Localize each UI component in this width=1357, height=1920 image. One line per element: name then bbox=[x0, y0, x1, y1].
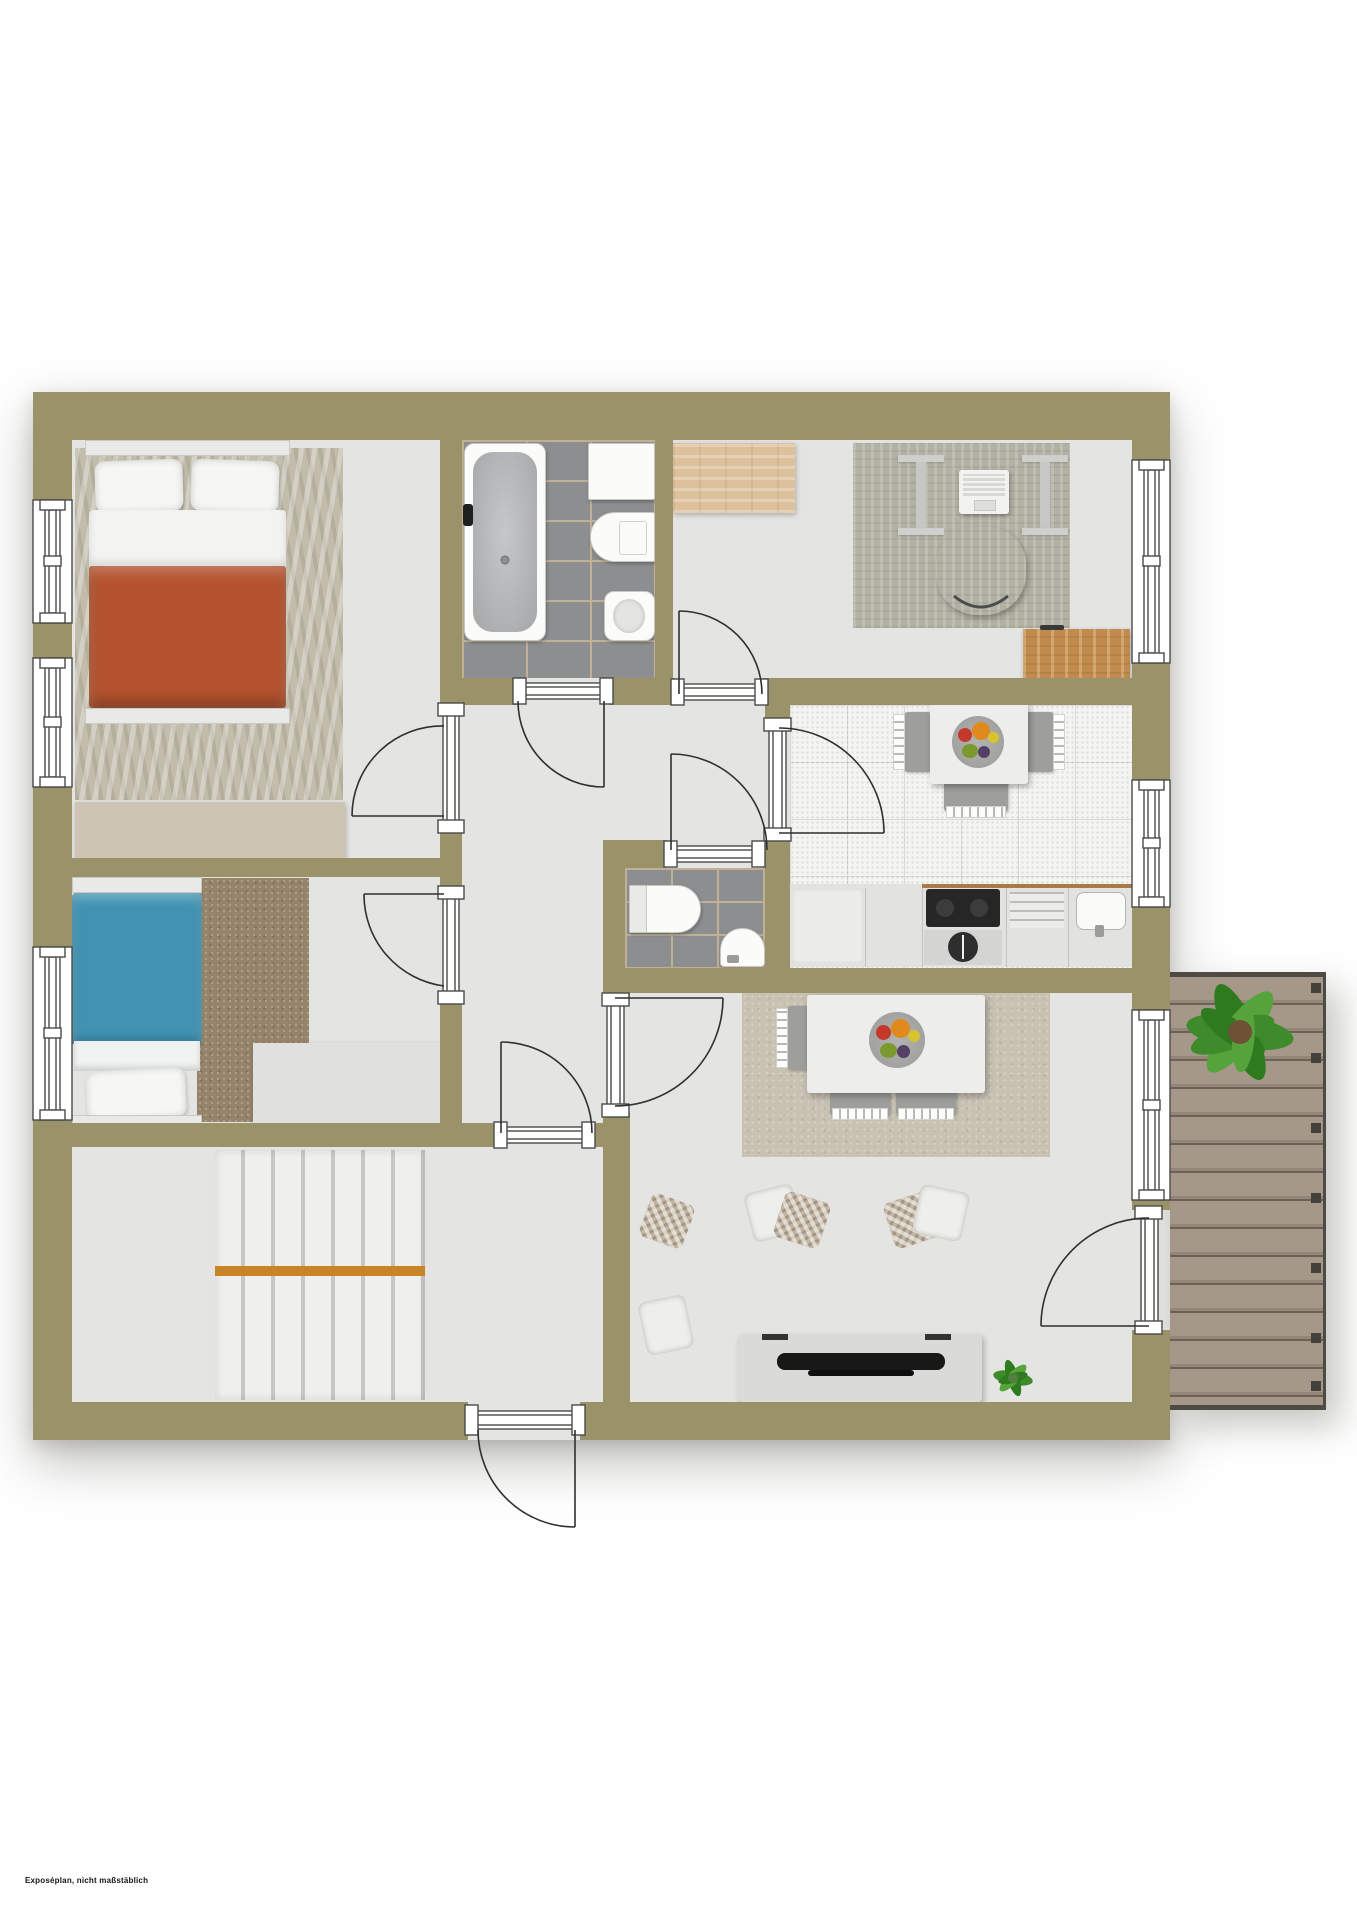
sofa-pillow bbox=[911, 1183, 970, 1242]
tv-stand bbox=[808, 1370, 914, 1376]
kitchen-counter bbox=[790, 884, 1132, 967]
wc-faucet-icon bbox=[727, 955, 739, 963]
deck-post bbox=[1311, 1381, 1321, 1391]
wall-living-west bbox=[603, 993, 630, 997]
trestle-cap bbox=[1022, 528, 1068, 535]
trestle-cap bbox=[898, 528, 944, 535]
counter-divider bbox=[922, 888, 923, 967]
wc-toilet-tank bbox=[630, 886, 647, 932]
stairs-handrail bbox=[215, 1266, 425, 1276]
wall-left bbox=[33, 623, 72, 658]
trestle-cap bbox=[1022, 455, 1068, 462]
balcony-deck bbox=[1170, 972, 1326, 1410]
office-sideboard bbox=[673, 443, 795, 513]
tv bbox=[777, 1353, 945, 1370]
kids-bed-pillow bbox=[85, 1066, 187, 1121]
kids-bed-sheet bbox=[74, 1041, 200, 1071]
fruit-grapes bbox=[897, 1045, 910, 1058]
living-chair-bottom2-back bbox=[898, 1108, 954, 1120]
kitchen-chair-bottom-back bbox=[946, 806, 1006, 818]
wall-wc-north bbox=[603, 840, 667, 868]
wall-wc-north bbox=[763, 840, 790, 868]
kitchen-chair-left-back bbox=[893, 714, 905, 770]
kitchen-chair-right-seat bbox=[1026, 712, 1054, 772]
laptop-keyboard bbox=[963, 474, 1005, 496]
living-chair-left-back bbox=[776, 1008, 788, 1068]
wall-stairs-north bbox=[593, 1123, 630, 1147]
bed-sheet bbox=[89, 510, 286, 568]
bed-pillow-left bbox=[94, 458, 184, 513]
wc-toilet bbox=[629, 885, 701, 933]
kitchen-chair-left-seat bbox=[904, 712, 932, 772]
counter-divider bbox=[865, 888, 866, 967]
wall-living-west bbox=[603, 1113, 630, 1402]
trestle-bar bbox=[916, 462, 926, 528]
counter-wood-edge bbox=[922, 884, 1132, 888]
laptop bbox=[959, 470, 1009, 514]
wall-right bbox=[1132, 1330, 1170, 1402]
fruit-yellow bbox=[988, 732, 999, 743]
kitchen-chair-right-back bbox=[1053, 714, 1065, 770]
bed-pillow-right bbox=[190, 458, 280, 513]
fruit-green bbox=[880, 1043, 897, 1058]
kids-desk bbox=[253, 1043, 441, 1123]
wall-right bbox=[1132, 1200, 1170, 1210]
counter-divider bbox=[1006, 888, 1007, 967]
fruit-grapes bbox=[978, 746, 990, 758]
wall-top bbox=[33, 392, 1170, 440]
sink-faucet-icon bbox=[1095, 925, 1104, 937]
oven-front bbox=[924, 930, 1002, 965]
bath-toilet-seat bbox=[619, 521, 647, 555]
fruit-yellow bbox=[908, 1030, 920, 1042]
wall-left bbox=[33, 440, 72, 500]
wall-kitchen-living bbox=[603, 968, 1132, 993]
tv-mount-icon bbox=[925, 1334, 951, 1340]
wall-wc-west bbox=[603, 868, 625, 968]
tv-mount-icon bbox=[762, 1334, 788, 1340]
bath-toilet bbox=[590, 512, 655, 562]
deck-post bbox=[1311, 1123, 1321, 1133]
single-bed bbox=[70, 875, 206, 1127]
bath-washbasin bbox=[588, 443, 655, 500]
dresser bbox=[75, 802, 345, 858]
burner bbox=[970, 899, 988, 917]
wall-bedrooms-divider bbox=[33, 858, 462, 877]
wall-bedroom-hall bbox=[440, 1003, 462, 1123]
trestle-cap bbox=[898, 455, 944, 462]
wall-bath-office-south bbox=[610, 678, 675, 705]
wall-left bbox=[33, 1120, 72, 1402]
bidet-bowl bbox=[613, 599, 645, 633]
fruit-red bbox=[958, 728, 972, 742]
wall-right bbox=[1132, 907, 1170, 1010]
living-chair-bottom1-back bbox=[832, 1108, 888, 1120]
wall-bath-office-south bbox=[763, 678, 1132, 705]
tv-sideboard bbox=[738, 1334, 982, 1402]
wall-bath-office-south bbox=[440, 678, 518, 705]
cooktop bbox=[926, 889, 1000, 927]
floor-plan-page: Exposéplan, nicht maßstäblich bbox=[0, 0, 1357, 1920]
knob-mark bbox=[962, 935, 964, 959]
bathtub-faucet-icon bbox=[463, 504, 473, 526]
wall-bedroom-hall bbox=[440, 440, 462, 705]
wall-bottom-left bbox=[33, 1402, 468, 1440]
plan-footnote: Exposéplan, nicht maßstäblich bbox=[25, 1876, 148, 1885]
desk-trestle-right bbox=[1022, 455, 1068, 535]
wall-right bbox=[1132, 663, 1170, 780]
bidet bbox=[604, 591, 655, 641]
trestle-bar bbox=[1040, 462, 1050, 528]
kitchen-sink bbox=[1076, 892, 1126, 930]
desk-trestle-left bbox=[898, 455, 944, 535]
wall-kitchen-west bbox=[765, 705, 790, 722]
counter-cabinet-front bbox=[792, 889, 863, 963]
counter-divider bbox=[1068, 888, 1069, 967]
office-wood-desk bbox=[1023, 629, 1130, 683]
living-fruit-bowl bbox=[869, 1012, 925, 1068]
laptop-trackpad bbox=[974, 500, 996, 511]
counter-drawers bbox=[1010, 892, 1064, 928]
deck-post bbox=[1311, 1053, 1321, 1063]
kitchen-fruit-bowl bbox=[952, 716, 1004, 768]
bed-footboard bbox=[85, 708, 290, 724]
deck-post bbox=[1311, 1263, 1321, 1273]
wall-stairs-north bbox=[33, 1123, 497, 1147]
wall-bottom-right bbox=[580, 1402, 1170, 1440]
kids-bed-duvet-blue bbox=[72, 893, 202, 1045]
wall-bath-office-divider bbox=[655, 440, 673, 678]
bathtub-basin bbox=[473, 452, 537, 632]
double-bed bbox=[85, 440, 290, 724]
wall-right bbox=[1132, 440, 1170, 460]
office-chair bbox=[936, 527, 1026, 615]
oven-knob bbox=[948, 932, 978, 962]
deck-post bbox=[1311, 1193, 1321, 1203]
bed-headboard bbox=[85, 440, 290, 456]
entry-door-swing bbox=[478, 1430, 575, 1527]
desk-handle-icon bbox=[1040, 625, 1064, 630]
deck-post bbox=[1311, 1333, 1321, 1343]
deck-post bbox=[1311, 983, 1321, 993]
bed-duvet-orange bbox=[89, 566, 286, 708]
bathtub bbox=[464, 443, 546, 641]
kids-bed-headboard bbox=[72, 877, 202, 893]
fruit-red bbox=[876, 1025, 891, 1040]
burner bbox=[936, 899, 954, 917]
wc-washbasin bbox=[720, 928, 765, 967]
fruit-green bbox=[962, 744, 978, 758]
